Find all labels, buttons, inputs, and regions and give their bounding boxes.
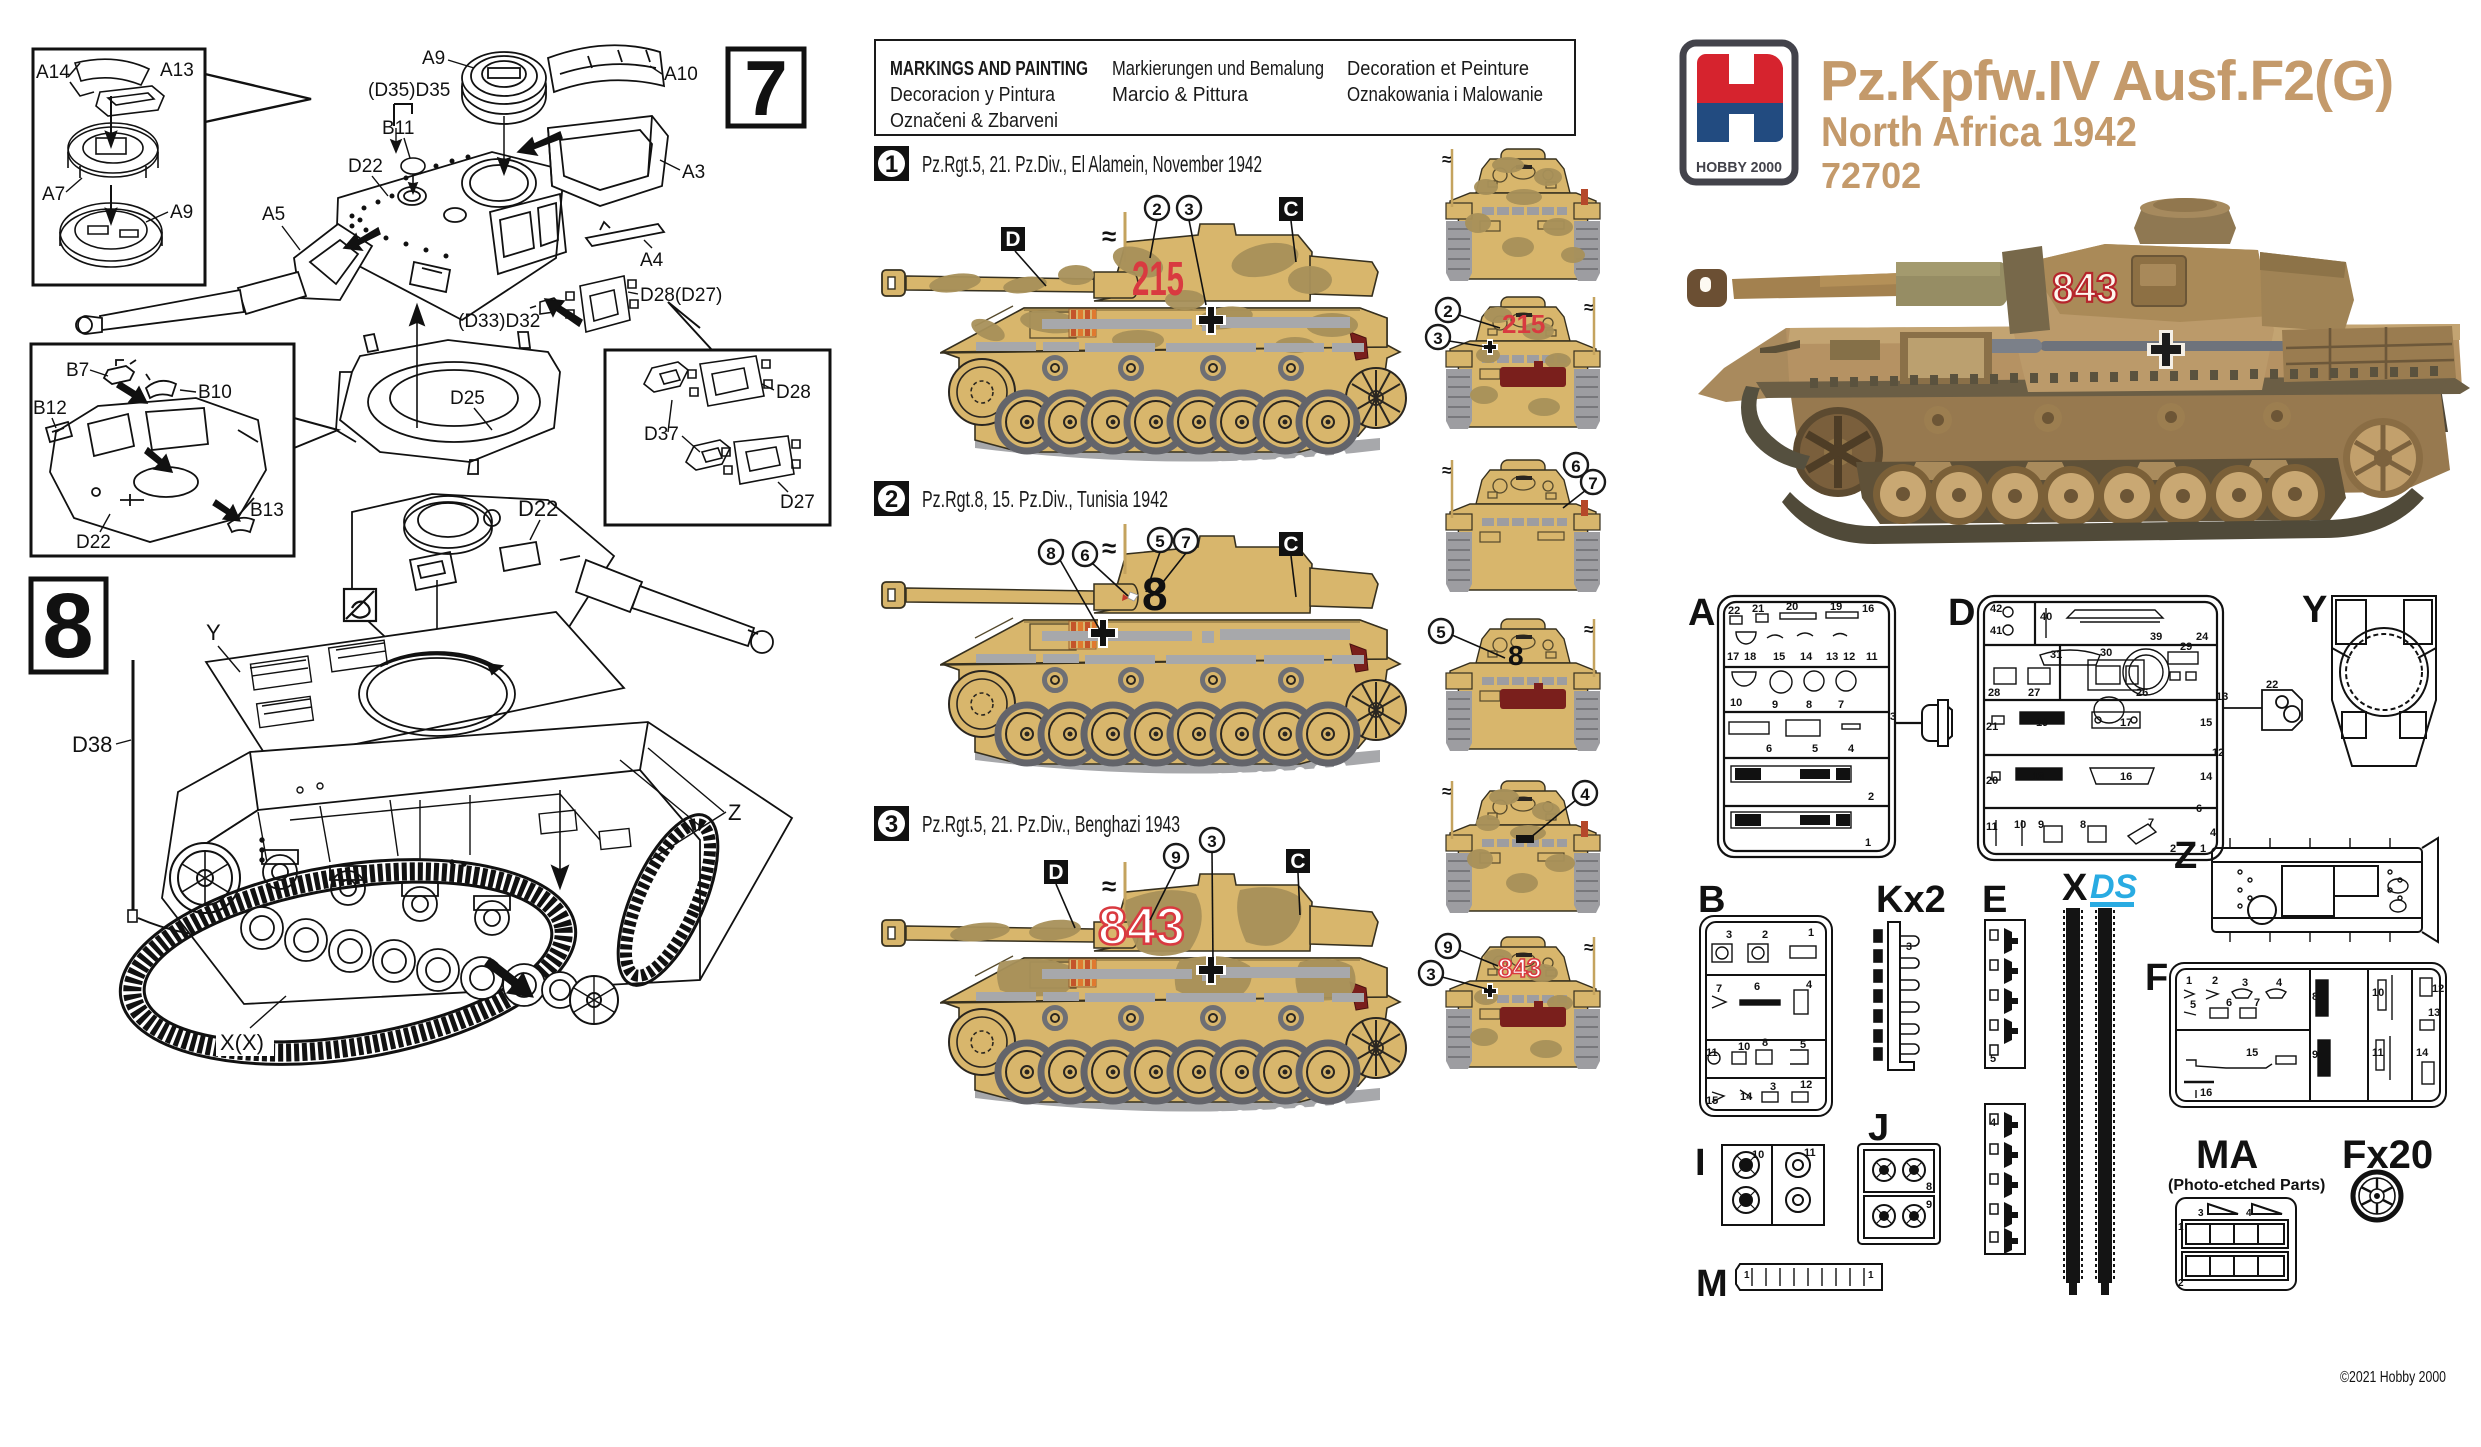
svg-text:D22: D22 xyxy=(348,156,383,177)
svg-text:12: 12 xyxy=(2432,983,2444,995)
svg-text:8: 8 xyxy=(1508,640,1524,671)
svg-text:D37: D37 xyxy=(644,424,679,445)
svg-text:7: 7 xyxy=(1838,699,1844,711)
svg-text:20: 20 xyxy=(1986,775,1998,787)
svg-text:12: 12 xyxy=(1843,651,1855,663)
svg-text:8: 8 xyxy=(1806,699,1812,711)
svg-text:14: 14 xyxy=(1740,1091,1753,1103)
svg-text:16: 16 xyxy=(2200,1087,2212,1099)
svg-text:6: 6 xyxy=(1754,981,1760,993)
svg-text:10: 10 xyxy=(1752,1149,1764,1161)
svg-text:6: 6 xyxy=(2226,997,2232,1009)
svg-text:Y: Y xyxy=(206,620,221,645)
svg-text:215: 215 xyxy=(1502,309,1545,339)
svg-text:≈: ≈ xyxy=(1584,938,1593,957)
svg-text:Fx20: Fx20 xyxy=(2342,1133,2433,1177)
svg-text:D28: D28 xyxy=(776,382,811,403)
svg-text:4: 4 xyxy=(1806,979,1813,991)
svg-text:14: 14 xyxy=(2200,771,2213,783)
svg-text:17: 17 xyxy=(2120,717,2132,729)
svg-text:≈: ≈ xyxy=(1442,782,1451,801)
svg-text:≈: ≈ xyxy=(1102,533,1116,563)
svg-text:1: 1 xyxy=(2200,843,2206,855)
svg-text:1: 1 xyxy=(1744,1270,1750,1281)
svg-text:Marcio & Pittura: Marcio & Pittura xyxy=(1112,84,1249,106)
svg-text:3: 3 xyxy=(2242,977,2248,989)
svg-text:15: 15 xyxy=(2200,717,2212,729)
svg-text:4: 4 xyxy=(2276,977,2283,989)
svg-text:Pz.Kpfw.IV Ausf.F2(G): Pz.Kpfw.IV Ausf.F2(G) xyxy=(1820,49,2393,113)
svg-text:Pz.Rgt.5, 21. Pz.Div., El Alam: Pz.Rgt.5, 21. Pz.Div., El Alamein, Novem… xyxy=(922,151,1262,177)
svg-text:27: 27 xyxy=(2028,687,2040,699)
svg-text:26: 26 xyxy=(2136,687,2148,699)
svg-text:Y: Y xyxy=(2302,589,2327,631)
svg-text:C: C xyxy=(1283,533,1298,556)
svg-text:4: 4 xyxy=(1580,785,1590,804)
svg-text:11: 11 xyxy=(1706,1047,1718,1059)
svg-text:843: 843 xyxy=(1098,898,1185,956)
svg-text:B7: B7 xyxy=(66,360,89,381)
svg-text:A: A xyxy=(1688,592,1715,634)
svg-text:Z: Z xyxy=(2174,835,2197,877)
svg-text:11: 11 xyxy=(1986,821,1998,833)
svg-text:4: 4 xyxy=(2210,827,2217,839)
svg-text:3: 3 xyxy=(1207,832,1216,851)
svg-text:D38: D38 xyxy=(72,732,112,757)
svg-text:F: F xyxy=(2145,957,2168,999)
svg-text:3: 3 xyxy=(1426,965,1435,984)
svg-text:A9: A9 xyxy=(170,202,193,223)
svg-text:10: 10 xyxy=(1738,1041,1750,1053)
svg-text:A4: A4 xyxy=(640,250,664,271)
svg-text:3: 3 xyxy=(2198,1208,2204,1219)
svg-text:2: 2 xyxy=(1868,791,1874,803)
svg-text:North Africa 1942: North Africa 1942 xyxy=(1821,108,2137,155)
svg-text:3: 3 xyxy=(1770,1081,1776,1093)
svg-text:3: 3 xyxy=(1726,929,1732,941)
svg-text:6: 6 xyxy=(2196,803,2202,815)
svg-text:DS: DS xyxy=(2090,868,2138,906)
svg-text:39: 39 xyxy=(2150,631,2162,643)
svg-text:(D33)D32: (D33)D32 xyxy=(458,311,540,332)
svg-text:12: 12 xyxy=(2212,747,2224,759)
svg-text:5: 5 xyxy=(1155,532,1164,551)
svg-text:22: 22 xyxy=(1728,605,1740,617)
svg-text:5: 5 xyxy=(2190,999,2196,1011)
svg-text:5: 5 xyxy=(1990,1053,1996,1065)
svg-text:8: 8 xyxy=(42,575,93,677)
svg-text:18: 18 xyxy=(2032,771,2044,783)
svg-text:X(X): X(X) xyxy=(220,1030,264,1055)
svg-text:≈: ≈ xyxy=(1102,871,1116,901)
svg-text:18: 18 xyxy=(1744,651,1756,663)
svg-text:2: 2 xyxy=(1762,929,1768,941)
svg-text:1: 1 xyxy=(2178,1222,2184,1233)
svg-text:21: 21 xyxy=(1986,721,1998,733)
svg-text:Oznakowania i Malowanie: Oznakowania i Malowanie xyxy=(1347,84,1543,106)
svg-text:D27: D27 xyxy=(780,492,815,513)
svg-text:13: 13 xyxy=(1826,651,1838,663)
svg-text:13: 13 xyxy=(2216,691,2228,703)
svg-text:2: 2 xyxy=(2178,1278,2184,1289)
svg-text:15: 15 xyxy=(1773,651,1785,663)
svg-text:Pz.Rgt.8, 15. Pz.Div., Tunisia: Pz.Rgt.8, 15. Pz.Div., Tunisia 1942 xyxy=(922,486,1168,512)
svg-text:3: 3 xyxy=(1433,329,1442,348)
svg-text:8: 8 xyxy=(2080,819,2086,831)
svg-text:D22: D22 xyxy=(76,532,111,553)
svg-text:B: B xyxy=(1698,879,1725,921)
svg-text:28: 28 xyxy=(1988,687,2000,699)
svg-text:8: 8 xyxy=(1046,544,1055,563)
svg-text:C: C xyxy=(1283,198,1298,221)
svg-text:4: 4 xyxy=(1848,743,1855,755)
svg-text:M: M xyxy=(1696,1263,1728,1305)
svg-text:12: 12 xyxy=(1800,1079,1812,1091)
svg-text:30: 30 xyxy=(2100,647,2112,659)
svg-text:8: 8 xyxy=(1762,1037,1768,1049)
svg-text:B11: B11 xyxy=(382,118,414,139)
svg-text:A3: A3 xyxy=(682,162,705,183)
svg-text:C: C xyxy=(1290,850,1305,873)
svg-text:1: 1 xyxy=(1868,1270,1874,1281)
svg-text:HOBBY 2000: HOBBY 2000 xyxy=(1696,159,1782,176)
svg-text:1: 1 xyxy=(1865,837,1871,849)
svg-text:215: 215 xyxy=(1132,253,1184,306)
svg-text:2: 2 xyxy=(885,486,898,513)
svg-text:11: 11 xyxy=(2372,1047,2384,1059)
svg-text:72702: 72702 xyxy=(1821,155,1921,196)
svg-text:Kx2: Kx2 xyxy=(1876,879,1946,921)
svg-text:3: 3 xyxy=(1890,711,1896,723)
svg-text:D28(D27): D28(D27) xyxy=(640,285,722,306)
svg-text:3: 3 xyxy=(885,811,898,838)
svg-text:41: 41 xyxy=(1990,625,2002,637)
svg-text:10: 10 xyxy=(2014,819,2026,831)
svg-text:A13: A13 xyxy=(160,60,194,81)
svg-text:843: 843 xyxy=(2052,264,2118,311)
svg-text:10: 10 xyxy=(2372,987,2384,999)
svg-text:2: 2 xyxy=(2212,975,2218,987)
svg-text:9: 9 xyxy=(2312,1049,2318,1061)
svg-text:I: I xyxy=(1695,1142,1706,1184)
svg-text:©2021 Hobby 2000: ©2021 Hobby 2000 xyxy=(2340,1369,2446,1386)
svg-text:≈: ≈ xyxy=(1442,150,1451,169)
svg-text:19: 19 xyxy=(1830,601,1842,613)
svg-text:3: 3 xyxy=(1184,200,1193,219)
svg-text:21: 21 xyxy=(1752,603,1764,615)
svg-text:6: 6 xyxy=(1080,546,1089,565)
svg-text:5: 5 xyxy=(1800,1039,1806,1051)
svg-text:Z: Z xyxy=(728,800,741,825)
svg-text:24: 24 xyxy=(2196,631,2209,643)
svg-text:19: 19 xyxy=(2036,717,2048,729)
svg-text:20: 20 xyxy=(1786,601,1798,613)
svg-text:Označeni & Zbarveni: Označeni & Zbarveni xyxy=(890,110,1058,132)
svg-text:6: 6 xyxy=(1766,743,1772,755)
svg-text:≈: ≈ xyxy=(1442,461,1451,480)
svg-text:7: 7 xyxy=(1588,474,1597,493)
svg-text:9: 9 xyxy=(1926,1199,1932,1211)
svg-text:5: 5 xyxy=(1436,623,1445,642)
svg-text:7: 7 xyxy=(744,44,787,132)
svg-text:15: 15 xyxy=(1706,1095,1718,1107)
svg-text:31: 31 xyxy=(2050,649,2062,661)
svg-text:6: 6 xyxy=(1571,457,1580,476)
svg-text:7: 7 xyxy=(1181,533,1190,552)
svg-text:8: 8 xyxy=(1142,568,1168,620)
svg-text:A5: A5 xyxy=(262,204,285,225)
svg-text:16: 16 xyxy=(2120,771,2132,783)
svg-text:22: 22 xyxy=(2266,679,2278,691)
svg-text:2: 2 xyxy=(1152,200,1161,219)
svg-text:A14: A14 xyxy=(36,62,70,83)
svg-text:A10: A10 xyxy=(664,64,698,85)
svg-text:(Photo-etched Parts): (Photo-etched Parts) xyxy=(2168,1177,2325,1194)
svg-text:B12: B12 xyxy=(33,398,67,419)
svg-text:MARKINGS AND PAINTING: MARKINGS AND PAINTING xyxy=(890,58,1088,80)
svg-text:7: 7 xyxy=(1716,983,1722,995)
svg-text:X: X xyxy=(2062,867,2088,909)
svg-text:≈: ≈ xyxy=(1102,221,1116,251)
svg-text:MA: MA xyxy=(2196,1133,2258,1177)
svg-text:14: 14 xyxy=(2416,1047,2429,1059)
svg-text:7: 7 xyxy=(2254,997,2260,1009)
svg-text:17: 17 xyxy=(1727,651,1739,663)
svg-text:B13: B13 xyxy=(250,500,284,521)
svg-text:(D35)D35: (D35)D35 xyxy=(368,80,450,101)
svg-text:13: 13 xyxy=(2428,1007,2440,1019)
svg-text:11: 11 xyxy=(1804,1147,1816,1159)
svg-text:11: 11 xyxy=(1866,651,1878,663)
svg-text:16: 16 xyxy=(1862,603,1874,615)
svg-text:≈: ≈ xyxy=(1584,298,1593,317)
svg-text:Pz.Rgt.5, 21. Pz.Div., Benghaz: Pz.Rgt.5, 21. Pz.Div., Benghazi 1943 xyxy=(922,811,1180,837)
svg-text:Decoracion y Pintura: Decoracion y Pintura xyxy=(890,84,1056,106)
svg-text:Decoration et Peinture: Decoration et Peinture xyxy=(1347,58,1529,80)
svg-text:40: 40 xyxy=(2040,611,2052,623)
svg-text:42: 42 xyxy=(1990,603,2002,615)
svg-text:≈: ≈ xyxy=(1584,620,1593,639)
svg-text:A9: A9 xyxy=(422,48,445,69)
svg-text:14: 14 xyxy=(1800,651,1813,663)
svg-text:8: 8 xyxy=(2312,991,2318,1003)
svg-text:A7: A7 xyxy=(42,184,65,205)
svg-text:1: 1 xyxy=(1808,927,1814,939)
svg-text:1: 1 xyxy=(2186,975,2192,987)
svg-text:D: D xyxy=(1948,592,1975,634)
svg-text:10: 10 xyxy=(1730,697,1742,709)
svg-text:5: 5 xyxy=(1812,743,1818,755)
svg-text:843: 843 xyxy=(1498,953,1541,983)
svg-text:2: 2 xyxy=(1443,302,1452,321)
svg-text:9: 9 xyxy=(1772,699,1778,711)
svg-text:3: 3 xyxy=(1906,941,1912,953)
svg-text:D: D xyxy=(1005,228,1020,251)
svg-text:15: 15 xyxy=(2246,1047,2258,1059)
svg-text:9: 9 xyxy=(2038,819,2044,831)
svg-text:D25: D25 xyxy=(450,388,485,409)
svg-text:4: 4 xyxy=(1990,1117,1997,1129)
svg-text:D22: D22 xyxy=(518,496,558,521)
svg-text:9: 9 xyxy=(1171,848,1180,867)
svg-text:Markierungen und Bemalung: Markierungen und Bemalung xyxy=(1112,58,1324,80)
svg-text:8: 8 xyxy=(1926,1181,1932,1193)
svg-text:7: 7 xyxy=(2148,817,2154,829)
svg-text:29: 29 xyxy=(2180,641,2192,653)
svg-text:E: E xyxy=(1982,879,2007,921)
svg-text:D: D xyxy=(1048,861,1063,884)
svg-text:4: 4 xyxy=(2246,1208,2252,1219)
svg-text:1: 1 xyxy=(885,151,898,178)
svg-text:J: J xyxy=(1868,1107,1889,1149)
svg-text:9: 9 xyxy=(1443,938,1452,957)
